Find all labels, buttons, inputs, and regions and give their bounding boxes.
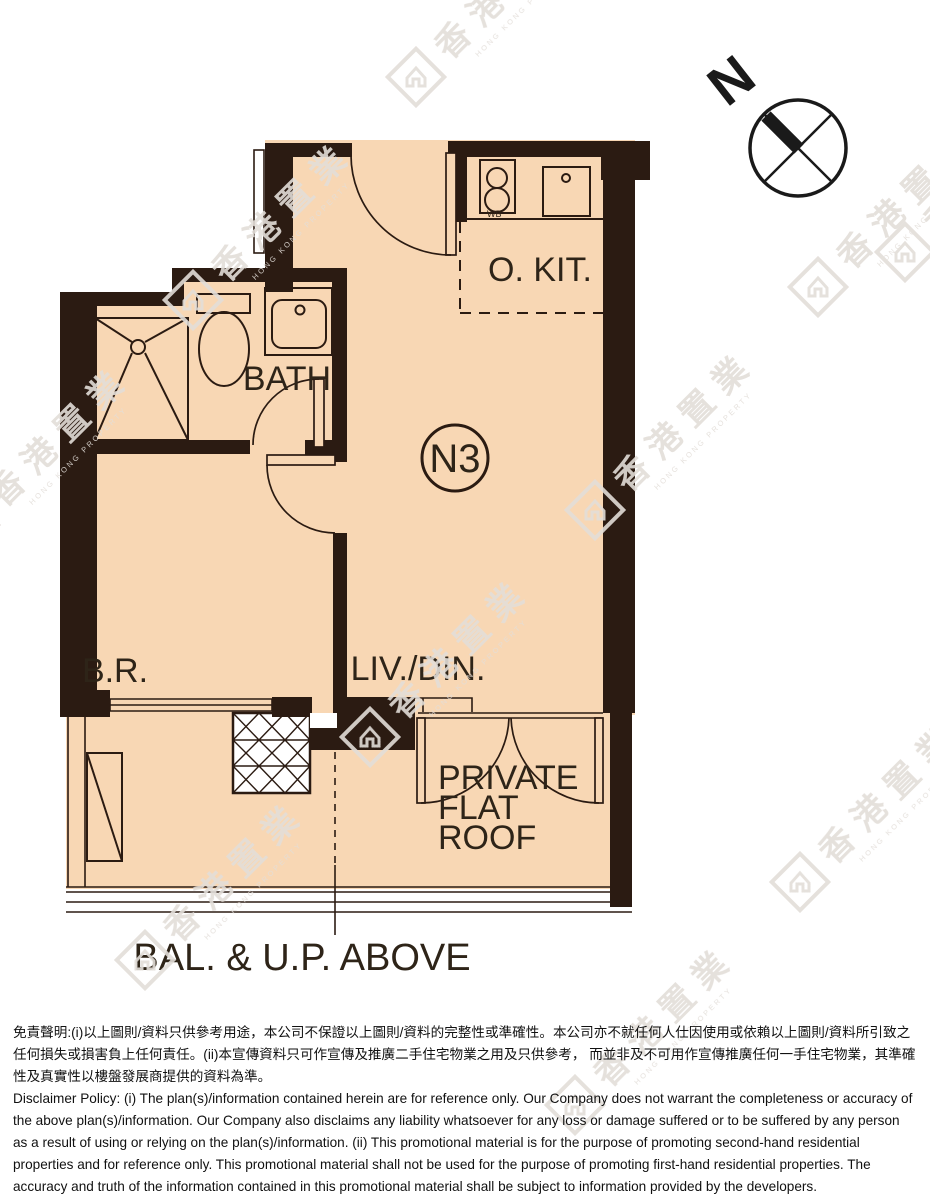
wall-notch (310, 713, 337, 728)
room-label-bath: BATH (243, 360, 331, 398)
floor-plan-canvas: WB (0, 0, 930, 1198)
room-label-kitchen: O. KIT. (488, 251, 592, 289)
compass-needle (766, 116, 799, 149)
svg-text:業: 業 (910, 723, 930, 774)
disclaimer-block: 免責聲明:(i)以上圖則/資料只供參考用途，本公司不保證以上圖則/資料的完整性或… (13, 1022, 917, 1198)
room-label-flat-roof-3: ROOF (438, 819, 536, 857)
room-label-bedroom: B.R. (82, 652, 148, 690)
hob-note: WB (487, 209, 502, 219)
watermark-logo: 香港置業HONG KONG PROPERTY (388, 0, 585, 114)
unit-label: N3 (429, 437, 480, 481)
watermark-logo: 香港置業HONG KONG PROPERTY (772, 721, 930, 918)
svg-text:香: 香 (428, 15, 479, 66)
svg-text:置: 置 (895, 160, 930, 211)
floor-plan-page: WB (0, 0, 930, 1198)
ac-platform-hatch (233, 713, 310, 793)
svg-text:香: 香 (830, 225, 881, 276)
svg-text:香: 香 (0, 463, 33, 514)
disclaimer-zh: 免責聲明:(i)以上圖則/資料只供參考用途，本公司不保證以上圖則/資料的完整性或… (13, 1022, 917, 1088)
svg-text:香: 香 (812, 820, 863, 871)
compass-north-label: N (696, 43, 767, 118)
compass: N (696, 43, 846, 196)
flat-roof-bottom-lines (66, 887, 632, 912)
disclaimer-en: Disclaimer Policy: (i) The plan(s)/infor… (13, 1088, 917, 1198)
